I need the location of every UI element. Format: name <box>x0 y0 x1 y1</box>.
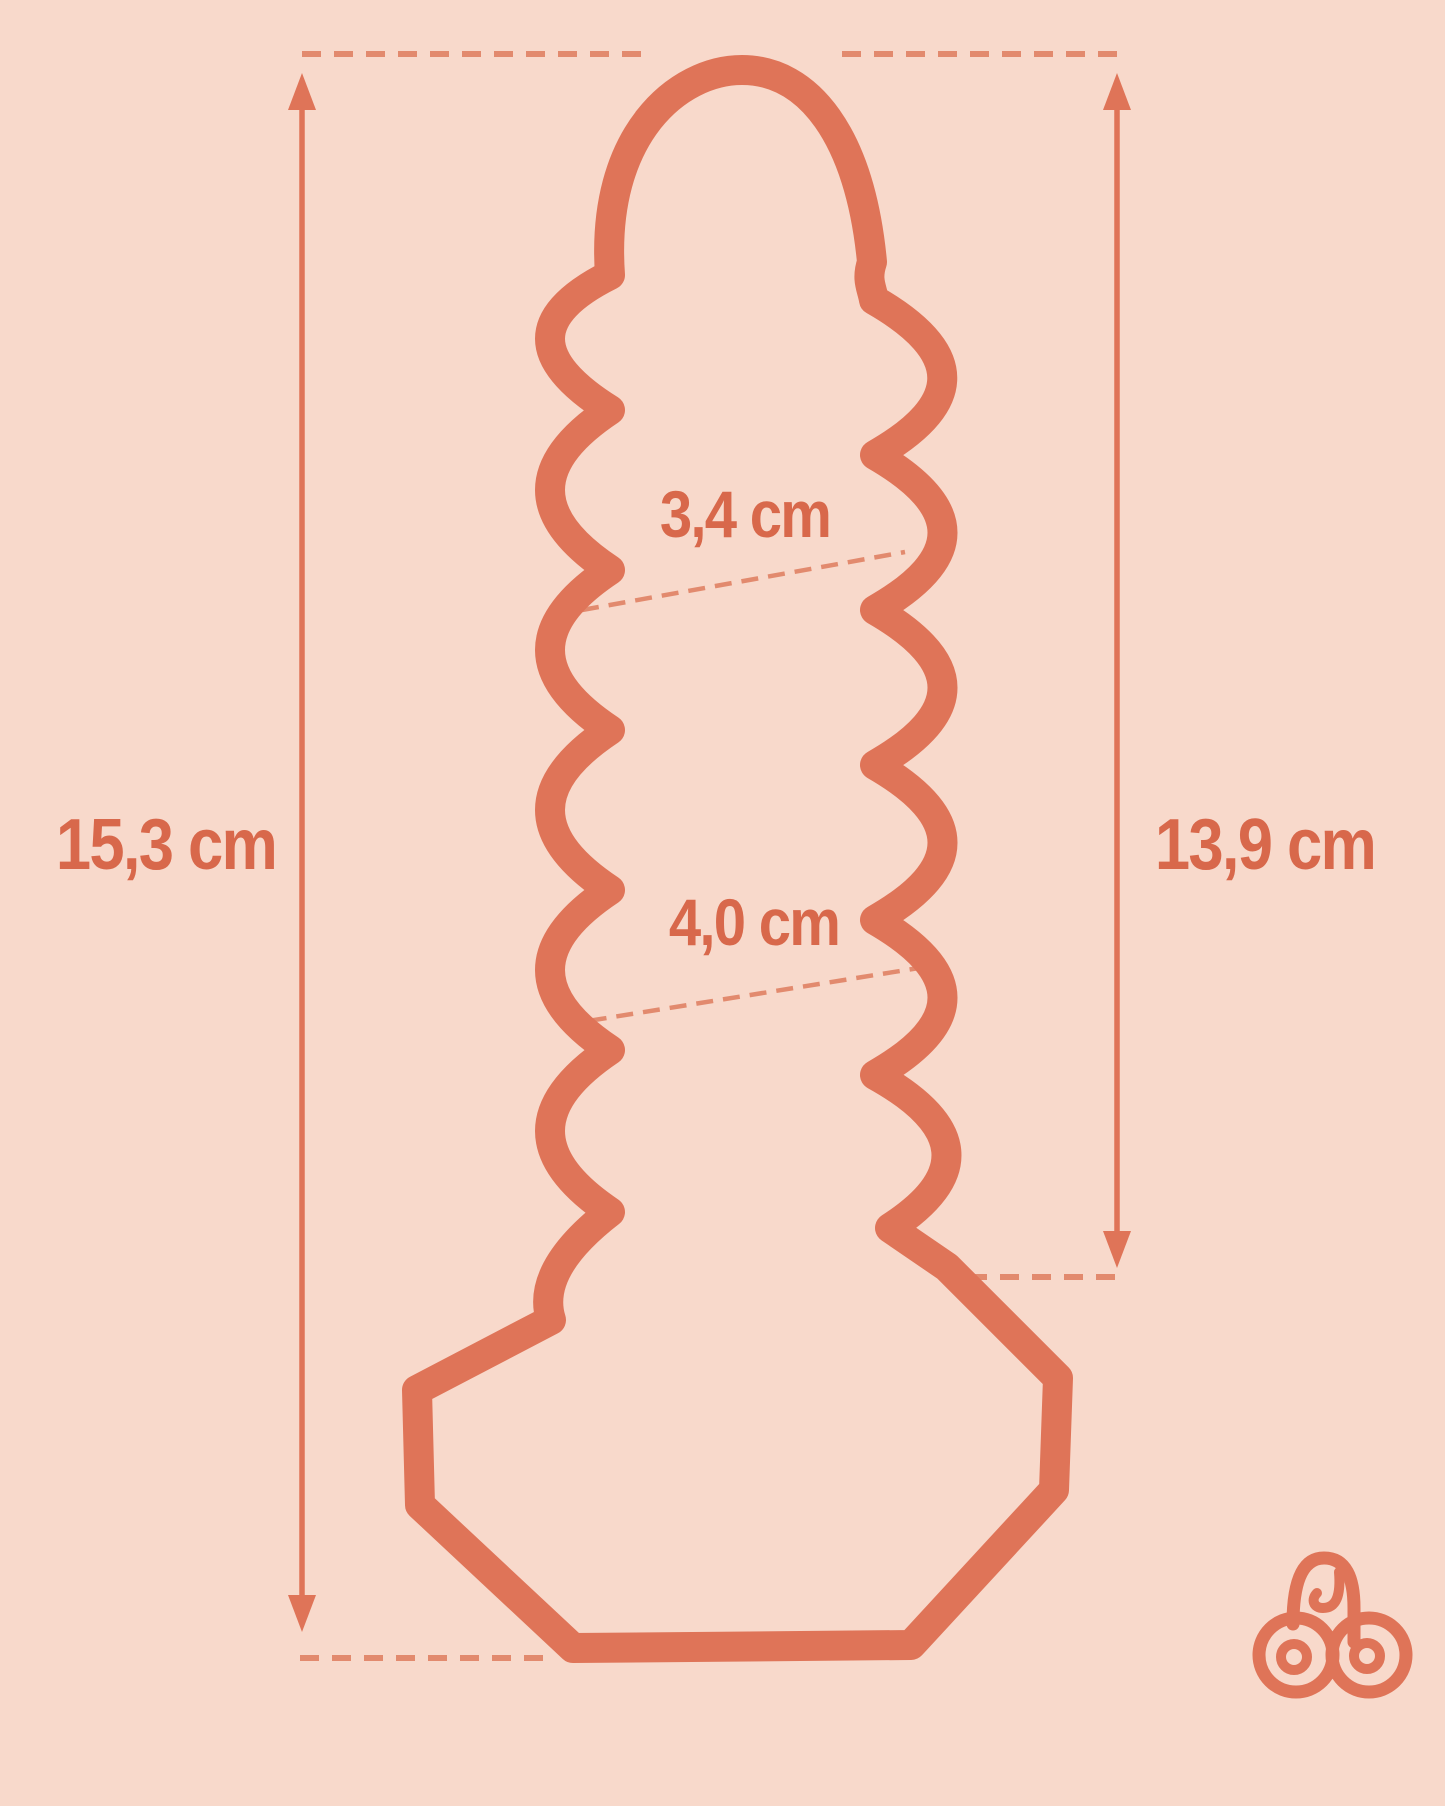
dimension-diagram: 15,3 cm 13,9 cm 3,4 cm 4,0 cm <box>0 0 1445 1806</box>
dimension-arrow-insertable-length <box>1103 73 1131 1268</box>
label-total-length: 15,3 cm <box>56 804 276 886</box>
diameter-line-lower <box>563 967 925 1025</box>
arrowhead-up-icon <box>288 73 316 110</box>
dimension-arrow-total-length <box>288 73 316 1632</box>
logo-ascender-curl <box>1314 1572 1340 1608</box>
product-outline <box>417 70 1058 1648</box>
arrowhead-down-icon <box>1103 1231 1131 1268</box>
label-insertable-length: 13,9 cm <box>1155 804 1375 886</box>
diameter-line-upper <box>582 552 905 610</box>
arrowhead-up-icon <box>1103 73 1131 110</box>
label-upper-diameter: 3,4 cm <box>660 476 830 552</box>
logo-letter-b-bowl <box>1332 1618 1406 1692</box>
label-lower-diameter: 4,0 cm <box>669 884 839 960</box>
arrowhead-down-icon <box>288 1595 316 1632</box>
brand-logo-ab <box>1259 1558 1406 1692</box>
logo-letter-a-counter <box>1281 1644 1307 1670</box>
